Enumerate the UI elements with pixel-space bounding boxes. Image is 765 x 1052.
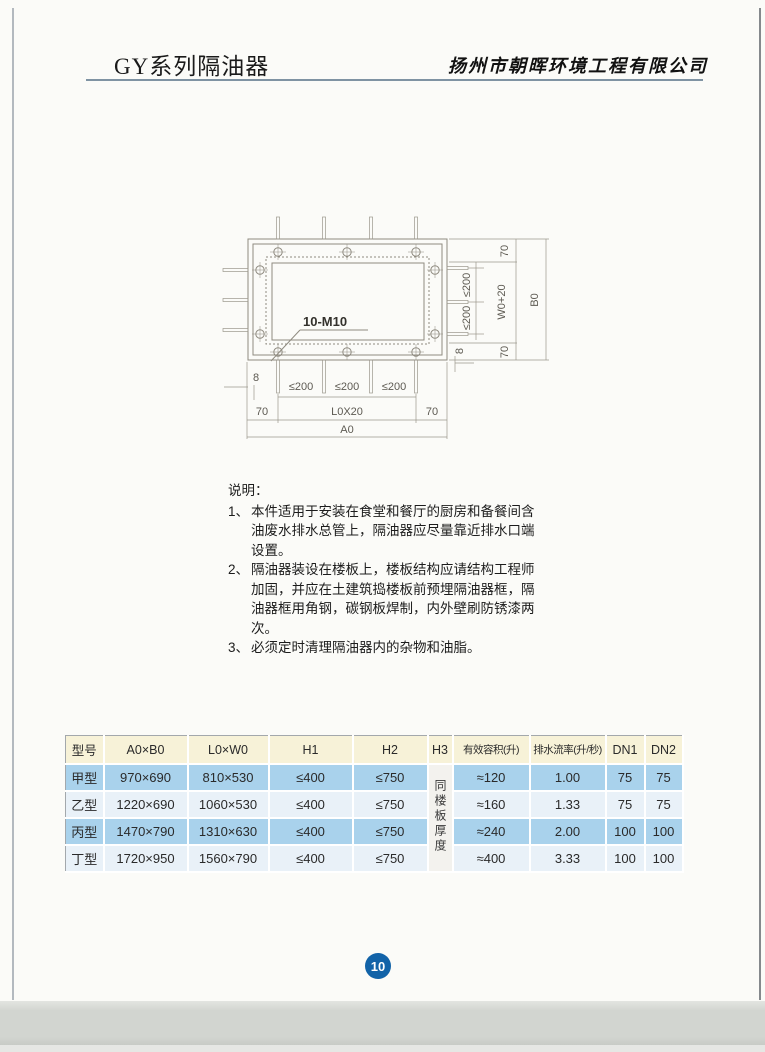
col-header-volume: 有效容积(升) (453, 736, 530, 765)
page-title: GY系列隔油器 (114, 47, 269, 81)
cell-dn2: 75 (645, 764, 683, 791)
note-item-1: 1、 本件适用于安装在食堂和餐厅的厨房和备餐间含油废水排水总管上，隔油器应尽量靠… (228, 502, 542, 561)
dim-le200-bottom-3: ≤200 (382, 381, 406, 393)
note-text: 必须定时清理隔油器内的杂物和油脂。 (251, 638, 542, 658)
dim-8-right: 8 (454, 348, 466, 354)
dim-70-right-top: 70 (499, 245, 511, 257)
col-header-l0w0: L0×W0 (188, 736, 269, 765)
company-name: 扬州市朝晖环境工程有限公司 (448, 52, 708, 78)
col-header-h2: H2 (353, 736, 428, 765)
cell-dn2: 75 (645, 791, 683, 818)
scan-bottom-shadow (0, 1001, 765, 1045)
note-item-2: 2、 隔油器装设在楼板上，楼板结构应请结构工程师加固，并应在土建筑捣楼板前预埋隔… (228, 560, 542, 638)
table-row-jia: 甲型 970×690 810×530 ≤400 ≤750 同楼板厚度 ≈120 … (66, 764, 683, 791)
dim-l0x20: L0X20 (331, 406, 363, 418)
dim-a0: A0 (340, 424, 353, 436)
cell-dn2: 100 (645, 845, 683, 872)
col-header-dn2: DN2 (645, 736, 683, 765)
spec-table: 型号 A0×B0 L0×W0 H1 H2 H3 有效容积(升) 排水流率(升/秒… (65, 735, 684, 873)
dimensions-bottom: 8 ≤200 ≤200 ≤200 70 L0X20 70 A0 (224, 362, 447, 439)
dim-le200-right-2: ≤200 (461, 306, 473, 330)
note-number: 1、 (228, 502, 251, 561)
cell-volume: ≈120 (453, 764, 530, 791)
cell-volume: ≈240 (453, 818, 530, 845)
cell-model: 丙型 (66, 818, 104, 845)
note-number: 3、 (228, 638, 251, 658)
cell-flow: 3.33 (530, 845, 606, 872)
cell-model: 丁型 (66, 845, 104, 872)
col-header-model: 型号 (66, 736, 104, 765)
scan-bottom-edge (0, 1045, 765, 1052)
table-header-row: 型号 A0×B0 L0×W0 H1 H2 H3 有效容积(升) 排水流率(升/秒… (66, 736, 683, 765)
col-header-dn1: DN1 (606, 736, 645, 765)
frame-installation-drawing: 10-M10 8 ≤200 ≤200 ≤200 70 L0X20 70 A0 (215, 200, 560, 450)
cell-h2: ≤750 (353, 845, 428, 872)
dim-70-right-bottom: 70 (499, 346, 511, 358)
dimensions-right: 70 W0+20 70 B0 ≤200 ≤200 8 (449, 239, 549, 372)
cell-h1: ≤400 (269, 764, 353, 791)
cell-flow: 2.00 (530, 818, 606, 845)
cell-a0b0: 1470×790 (104, 818, 188, 845)
note-number: 2、 (228, 560, 251, 638)
col-header-a0b0: A0×B0 (104, 736, 188, 765)
dim-le200-bottom-2: ≤200 (335, 381, 359, 393)
cell-h3-merged: 同楼板厚度 (428, 764, 453, 872)
table-row-yi: 乙型 1220×690 1060×530 ≤400 ≤750 ≈160 1.33… (66, 791, 683, 818)
cell-flow: 1.33 (530, 791, 606, 818)
scan-edge-right (759, 8, 761, 1000)
dim-8-left: 8 (253, 372, 259, 384)
header-rule (86, 79, 703, 81)
cell-dn2: 100 (645, 818, 683, 845)
cell-dn1: 75 (606, 791, 645, 818)
note-text: 隔油器装设在楼板上，楼板结构应请结构工程师加固，并应在土建筑捣楼板前预埋隔油器框… (251, 560, 542, 638)
dim-b0: B0 (529, 293, 541, 306)
cell-h1: ≤400 (269, 845, 353, 872)
cell-l0w0: 810×530 (188, 764, 269, 791)
bolt-spec-label: 10-M10 (303, 314, 347, 329)
cell-volume: ≈400 (453, 845, 530, 872)
mounting-bolts (252, 244, 443, 360)
h3-vertical-note: 同楼板厚度 (434, 779, 446, 854)
bolt-callout: 10-M10 (271, 314, 368, 361)
cell-dn1: 100 (606, 818, 645, 845)
notes-section: 说明： 1、 本件适用于安装在食堂和餐厅的厨房和备餐间含油废水排水总管上，隔油器… (228, 481, 542, 658)
cell-l0w0: 1310×630 (188, 818, 269, 845)
scan-edge-left (12, 8, 14, 1000)
table-row-ding: 丁型 1720×950 1560×790 ≤400 ≤750 ≈400 3.33… (66, 845, 683, 872)
cell-model: 乙型 (66, 791, 104, 818)
anchor-studs-top (277, 217, 418, 239)
col-header-flow: 排水流率(升/秒) (530, 736, 606, 765)
dim-70-bottom-left: 70 (256, 406, 268, 418)
cell-h1: ≤400 (269, 818, 353, 845)
cell-a0b0: 1720×950 (104, 845, 188, 872)
spec-table-wrap: 型号 A0×B0 L0×W0 H1 H2 H3 有效容积(升) 排水流率(升/秒… (65, 735, 684, 873)
dim-w0plus20: W0+20 (496, 284, 508, 319)
col-header-h1: H1 (269, 736, 353, 765)
cell-model: 甲型 (66, 764, 104, 791)
col-header-h3: H3 (428, 736, 453, 765)
note-item-3: 3、 必须定时清理隔油器内的杂物和油脂。 (228, 638, 542, 658)
cell-l0w0: 1060×530 (188, 791, 269, 818)
cell-l0w0: 1560×790 (188, 845, 269, 872)
cell-flow: 1.00 (530, 764, 606, 791)
scanned-catalog-page: GY系列隔油器 扬州市朝晖环境工程有限公司 (0, 0, 765, 1052)
notes-heading: 说明： (228, 481, 542, 501)
anchor-studs-left (223, 269, 248, 332)
cell-h2: ≤750 (353, 818, 428, 845)
cell-h2: ≤750 (353, 791, 428, 818)
page-number-badge: 10 (365, 953, 391, 979)
dim-70-bottom-right: 70 (426, 406, 438, 418)
cell-h2: ≤750 (353, 764, 428, 791)
cell-dn1: 100 (606, 845, 645, 872)
cell-volume: ≈160 (453, 791, 530, 818)
cell-a0b0: 970×690 (104, 764, 188, 791)
note-text: 本件适用于安装在食堂和餐厅的厨房和备餐间含油废水排水总管上，隔油器应尽量靠近排水… (251, 502, 542, 561)
table-row-bing: 丙型 1470×790 1310×630 ≤400 ≤750 ≈240 2.00… (66, 818, 683, 845)
cell-h1: ≤400 (269, 791, 353, 818)
dim-le200-bottom-1: ≤200 (289, 381, 313, 393)
dim-le200-right-1: ≤200 (461, 273, 473, 297)
cell-dn1: 75 (606, 764, 645, 791)
cell-a0b0: 1220×690 (104, 791, 188, 818)
